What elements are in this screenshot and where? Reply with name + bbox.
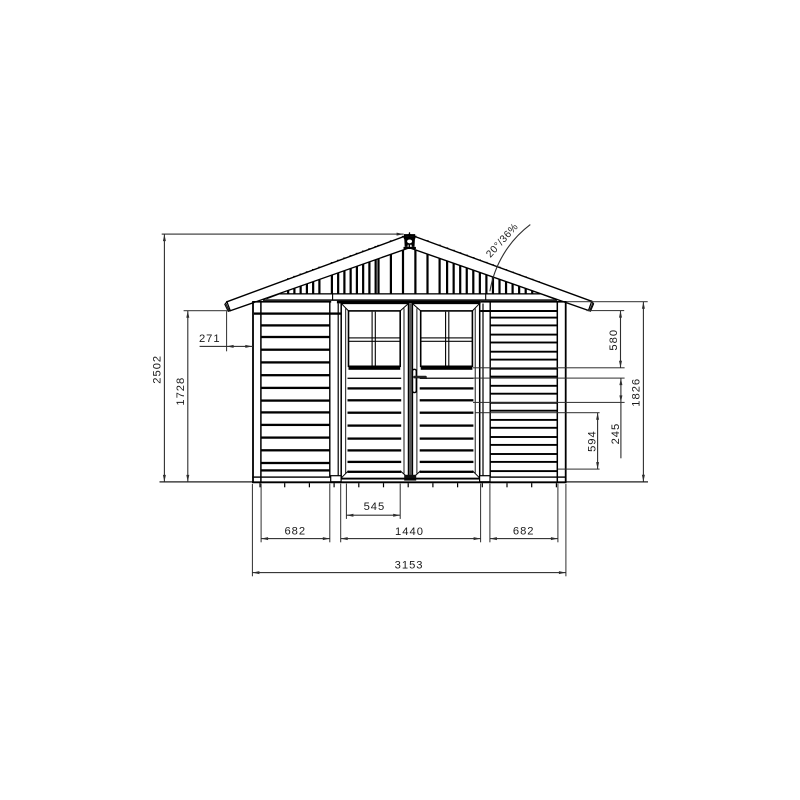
svg-text:1826: 1826: [630, 378, 642, 407]
svg-text:271: 271: [199, 333, 221, 345]
svg-text:682: 682: [513, 525, 535, 537]
svg-text:2502: 2502: [152, 355, 164, 384]
svg-text:245: 245: [610, 423, 622, 445]
svg-text:1440: 1440: [395, 526, 424, 538]
svg-text:594: 594: [587, 430, 599, 452]
svg-text:1728: 1728: [175, 377, 187, 406]
svg-text:3153: 3153: [395, 560, 424, 572]
svg-text:580: 580: [608, 329, 620, 351]
svg-text:682: 682: [284, 526, 306, 538]
svg-text:545: 545: [364, 501, 386, 513]
